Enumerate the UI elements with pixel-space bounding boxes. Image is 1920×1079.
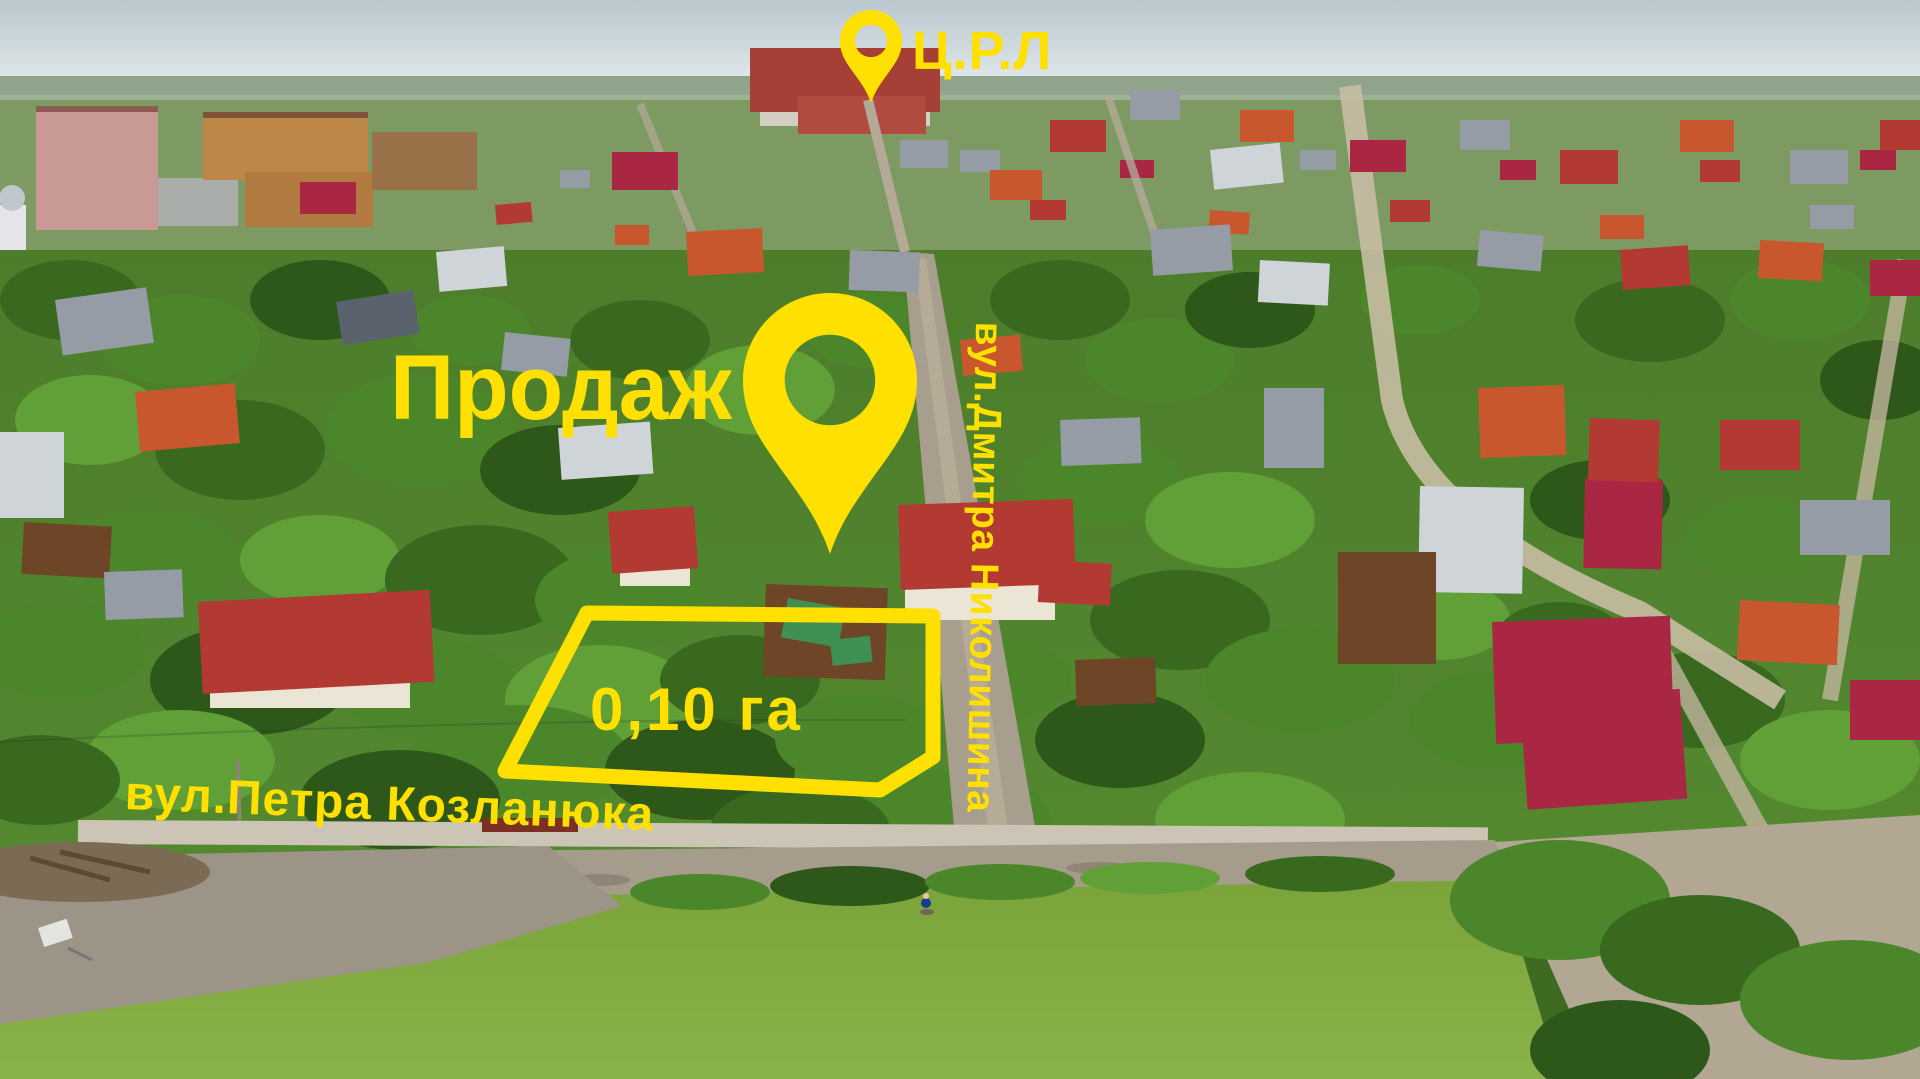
photo-scene [0, 0, 1920, 1079]
pink-apartment-building [36, 112, 158, 230]
aerial-photo: Ц.Р.Л Продаж 0,10 га вул.Петра Козланюка… [0, 0, 1920, 1079]
red-roof-house [198, 590, 434, 708]
parcel-house [763, 584, 888, 680]
sale-label: Продаж [390, 342, 732, 434]
street-label-nykolyshyna: вул.Дмитра Николишина [960, 321, 1008, 812]
poi-label: Ц.Р.Л [912, 24, 1052, 78]
area-label: 0,10 га [590, 680, 803, 740]
